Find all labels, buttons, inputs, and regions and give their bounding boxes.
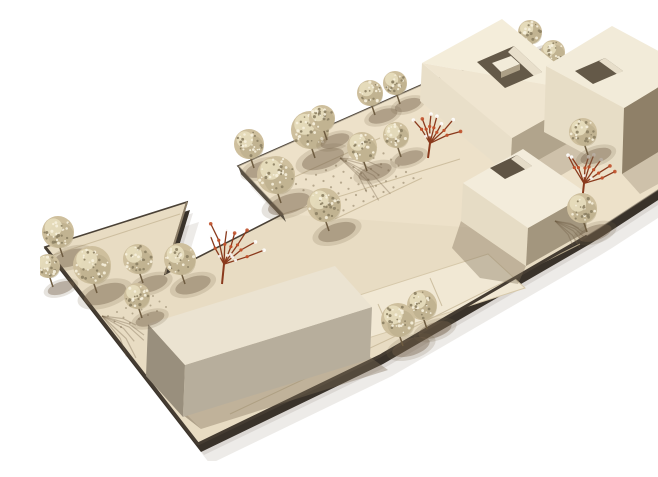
speckle [295, 133, 297, 135]
speckle [313, 115, 316, 118]
speckle [61, 242, 63, 244]
speckle [324, 113, 326, 115]
speckle [400, 125, 402, 127]
speckle [43, 256, 45, 258]
speckle [531, 38, 534, 41]
speckle [96, 254, 98, 256]
speckle [250, 154, 253, 157]
speckle [269, 176, 272, 179]
speckle [267, 172, 270, 175]
speckle [132, 255, 134, 257]
speckle [261, 177, 263, 179]
speckle [136, 295, 138, 297]
speckle [321, 202, 323, 204]
speckle [401, 310, 404, 313]
dot [295, 183, 297, 185]
speckle [404, 137, 407, 140]
speckle [83, 255, 85, 257]
speckle [412, 306, 415, 309]
speckle [150, 256, 153, 259]
speckle [368, 139, 370, 141]
red-tree-bud [246, 255, 249, 258]
speckle [421, 314, 423, 316]
speckle [311, 110, 314, 113]
speckle [418, 302, 420, 304]
speckle [92, 263, 93, 264]
speckle [361, 97, 363, 99]
speckle [579, 199, 581, 201]
speckle [134, 304, 137, 307]
speckle [390, 141, 392, 143]
speckle [415, 305, 418, 308]
speckle [261, 181, 264, 184]
speckle [356, 157, 358, 159]
speckle [252, 132, 254, 134]
dot [345, 199, 347, 201]
speckle [251, 139, 253, 141]
speckle [258, 179, 261, 182]
red-tree-bud [236, 243, 239, 246]
speckle [280, 165, 283, 168]
speckle [333, 199, 336, 202]
red-tree-bud [597, 171, 600, 174]
speckle [321, 194, 324, 197]
speckle [96, 269, 98, 271]
speckle [398, 130, 400, 132]
speckle [128, 298, 131, 301]
model-scene-svg [40, 16, 658, 461]
speckle [53, 236, 55, 238]
speckle [319, 197, 322, 200]
red-tree-bud [209, 234, 213, 238]
speckle [295, 139, 298, 142]
speckle [134, 296, 136, 298]
speckle [254, 135, 256, 137]
red-tree-bud [229, 253, 232, 256]
dot [395, 176, 397, 178]
speckle [362, 93, 363, 94]
dot [375, 185, 377, 187]
dot [342, 209, 344, 211]
speckle [177, 255, 179, 257]
speckle [398, 84, 401, 87]
red-tree-bud [451, 118, 455, 122]
speckle [426, 311, 428, 313]
speckle [144, 290, 146, 292]
speckle [524, 27, 527, 30]
speckle [315, 191, 318, 194]
speckle [575, 218, 577, 220]
speckle [422, 317, 425, 320]
speckle [142, 258, 145, 261]
speckle [296, 129, 299, 132]
dot [330, 186, 332, 188]
speckle [307, 134, 309, 136]
speckle [529, 32, 532, 35]
speckle [83, 257, 85, 259]
speckle [66, 221, 68, 223]
speckle [323, 117, 326, 120]
speckle [428, 308, 431, 311]
speckle [364, 141, 367, 144]
speckle [586, 130, 589, 133]
speckle [414, 292, 417, 295]
red-tree-bud [608, 164, 612, 168]
speckle [272, 159, 274, 161]
speckle [382, 321, 385, 324]
speckle [242, 148, 244, 150]
speckle [318, 112, 320, 114]
speckle [325, 195, 326, 196]
speckle [284, 173, 287, 176]
speckle [576, 211, 578, 213]
speckle [275, 174, 278, 177]
speckle [421, 309, 424, 312]
speckle [394, 84, 396, 86]
speckle [531, 25, 533, 27]
dot [332, 175, 334, 177]
speckle [390, 126, 392, 128]
speckle [371, 85, 373, 87]
red-tree-bud [590, 177, 593, 180]
speckle [138, 303, 141, 306]
speckle [396, 319, 398, 321]
speckle [257, 149, 259, 151]
speckle [243, 133, 246, 136]
speckle [54, 221, 57, 224]
speckle [408, 326, 411, 329]
speckle [137, 298, 139, 300]
speckle [555, 42, 556, 43]
speckle [180, 259, 182, 261]
speckle [49, 273, 51, 275]
dot [150, 305, 152, 307]
red-tree-bud [566, 153, 570, 157]
speckle [126, 298, 127, 299]
speckle [280, 160, 282, 162]
speckle [237, 137, 239, 139]
speckle [169, 252, 171, 254]
speckle [386, 140, 389, 143]
dot [159, 301, 161, 303]
speckle [570, 133, 573, 136]
speckle [188, 260, 189, 261]
speckle [140, 286, 142, 288]
speckle [50, 230, 53, 233]
red-tree-bud [231, 256, 234, 259]
speckle [555, 47, 557, 49]
speckle [84, 259, 86, 261]
speckle [76, 264, 78, 266]
speckle [182, 263, 185, 266]
speckle [393, 123, 395, 125]
red-tree-bud [262, 248, 266, 252]
dot [342, 171, 344, 173]
speckle [555, 55, 557, 57]
speckle [585, 137, 588, 140]
speckle [166, 256, 169, 259]
speckle [103, 271, 106, 274]
speckle [285, 166, 288, 169]
speckle [129, 304, 132, 307]
speckle [359, 154, 361, 156]
speckle [400, 129, 403, 132]
speckle [418, 296, 420, 298]
speckle [46, 255, 49, 258]
red-tree-bud [435, 131, 438, 134]
speckle [592, 130, 594, 132]
speckle [400, 79, 402, 81]
speckle [388, 127, 390, 129]
speckle [367, 146, 370, 149]
speckle [391, 324, 394, 327]
speckle [391, 80, 394, 83]
red-tree-bud [233, 231, 237, 235]
speckle [317, 126, 319, 128]
speckle [402, 76, 405, 79]
dot [116, 311, 118, 313]
speckle [271, 189, 273, 191]
speckle [134, 290, 137, 293]
speckle [386, 313, 388, 315]
red-tree-bud [577, 166, 580, 169]
red-tree-bud [229, 245, 232, 248]
speckle [282, 171, 284, 173]
speckle [139, 268, 142, 271]
speckle [146, 289, 149, 292]
speckle [395, 137, 398, 140]
red-tree-bud [223, 243, 226, 246]
dot [355, 194, 357, 196]
speckle [585, 125, 588, 128]
speckle [400, 325, 402, 327]
speckle [298, 136, 300, 138]
speckle [550, 55, 552, 57]
speckle [527, 24, 529, 26]
speckle [311, 140, 313, 142]
speckle [306, 140, 309, 143]
speckle [590, 122, 592, 124]
speckle [588, 137, 590, 139]
speckle [147, 263, 149, 265]
speckle [528, 31, 530, 33]
speckle [46, 267, 49, 270]
speckle [368, 99, 370, 101]
speckle [585, 121, 588, 124]
speckle [44, 268, 46, 270]
speckle [81, 251, 83, 253]
dot [385, 180, 387, 182]
speckle [50, 267, 53, 270]
speckle [399, 76, 401, 78]
speckle [372, 152, 374, 154]
speckle [582, 206, 585, 209]
dot [125, 307, 127, 309]
red-tree-bud [226, 254, 229, 257]
speckle [297, 138, 299, 140]
speckle [256, 140, 258, 142]
speckle [361, 143, 363, 145]
speckle [593, 210, 596, 213]
speckle [422, 292, 423, 293]
speckle [524, 31, 527, 34]
tree-canopy-highlight [126, 285, 140, 299]
speckle [305, 121, 307, 123]
speckle [178, 256, 180, 258]
red-tree-bud [234, 259, 237, 262]
speckle [92, 277, 94, 279]
speckle [591, 138, 594, 141]
speckle [590, 210, 593, 213]
red-tree-bud [435, 114, 439, 118]
speckle [92, 266, 94, 268]
speckle [376, 84, 378, 86]
speckle [389, 314, 392, 317]
speckle [398, 308, 400, 310]
speckle [134, 247, 136, 249]
speckle [410, 321, 413, 324]
speckle [580, 206, 582, 208]
speckle [312, 122, 315, 125]
speckle [56, 235, 59, 238]
speckle [394, 313, 397, 316]
speckle [353, 145, 355, 147]
speckle [291, 178, 293, 180]
speckle [55, 225, 58, 228]
speckle [302, 127, 305, 130]
speckle [575, 205, 577, 207]
speckle [260, 144, 263, 147]
dot [132, 313, 134, 315]
speckle [378, 88, 380, 90]
speckle [337, 201, 340, 204]
speckle [241, 138, 244, 141]
speckle [584, 219, 586, 221]
speckle [387, 130, 390, 133]
speckle [590, 134, 592, 136]
red-tree-bud [445, 134, 448, 137]
speckle [323, 206, 325, 208]
speckle [575, 137, 577, 139]
speckle [107, 262, 109, 264]
speckle [66, 237, 68, 239]
speckle [75, 270, 78, 273]
red-tree-bud [459, 130, 463, 134]
red-tree-bud [613, 170, 617, 174]
dot [372, 196, 374, 198]
speckle [87, 269, 89, 271]
speckle [307, 122, 308, 123]
speckle [271, 183, 274, 186]
speckle [390, 87, 392, 89]
speckle [309, 130, 312, 133]
speckle [135, 269, 137, 271]
speckle [364, 90, 366, 92]
red-tree-bud [245, 228, 249, 232]
speckle [368, 87, 370, 89]
dot [322, 180, 324, 182]
speckle [369, 142, 371, 144]
speckle [175, 257, 177, 259]
speckle [165, 257, 166, 258]
speckle [413, 297, 415, 299]
speckle [575, 134, 577, 136]
speckle [275, 187, 277, 189]
speckle [137, 255, 140, 258]
speckle [312, 195, 314, 197]
speckle [62, 229, 63, 230]
speckle [131, 299, 134, 302]
speckle [372, 86, 374, 88]
dot [382, 152, 384, 154]
speckle [430, 312, 432, 314]
speckle [82, 268, 84, 270]
speckle [426, 305, 428, 307]
speckle [84, 277, 87, 280]
speckle [61, 225, 63, 227]
speckle [45, 237, 47, 239]
speckle [125, 265, 128, 268]
speckle [581, 215, 584, 218]
speckle [304, 116, 306, 118]
speckle [333, 207, 336, 210]
speckle [328, 203, 331, 206]
speckle [530, 21, 533, 24]
dot [405, 171, 407, 173]
red-tree-bud [209, 222, 213, 226]
speckle [192, 255, 195, 258]
speckle [394, 125, 397, 128]
speckle [359, 91, 361, 93]
speckle [47, 234, 49, 236]
speckle [588, 215, 590, 217]
speckle [300, 121, 302, 123]
speckle [319, 114, 321, 116]
speckle [52, 272, 55, 275]
speckle [361, 147, 363, 149]
speckle [398, 320, 401, 323]
speckle [401, 306, 404, 309]
speckle [282, 158, 284, 160]
speckle [61, 234, 63, 236]
speckle [591, 202, 594, 205]
speckle [372, 98, 374, 100]
red-tree-bud [601, 176, 604, 179]
speckle [134, 254, 137, 257]
dot [392, 186, 394, 188]
speckle [535, 24, 536, 25]
speckle [547, 51, 549, 53]
speckle [399, 136, 401, 138]
speckle [528, 28, 531, 31]
speckle [574, 126, 577, 129]
speckle [535, 37, 538, 40]
speckle [389, 134, 392, 137]
speckle [179, 253, 182, 256]
speckle [526, 34, 529, 37]
red-tree-bud [412, 118, 416, 122]
speckle [45, 272, 47, 274]
tree-canopy-highlight [359, 82, 373, 96]
speckle [576, 131, 579, 134]
speckle [249, 149, 251, 151]
speckle [81, 276, 84, 279]
speckle [103, 264, 106, 267]
speckle [576, 214, 578, 216]
speckle [391, 85, 394, 88]
speckle [395, 143, 398, 146]
speckle [258, 148, 260, 150]
